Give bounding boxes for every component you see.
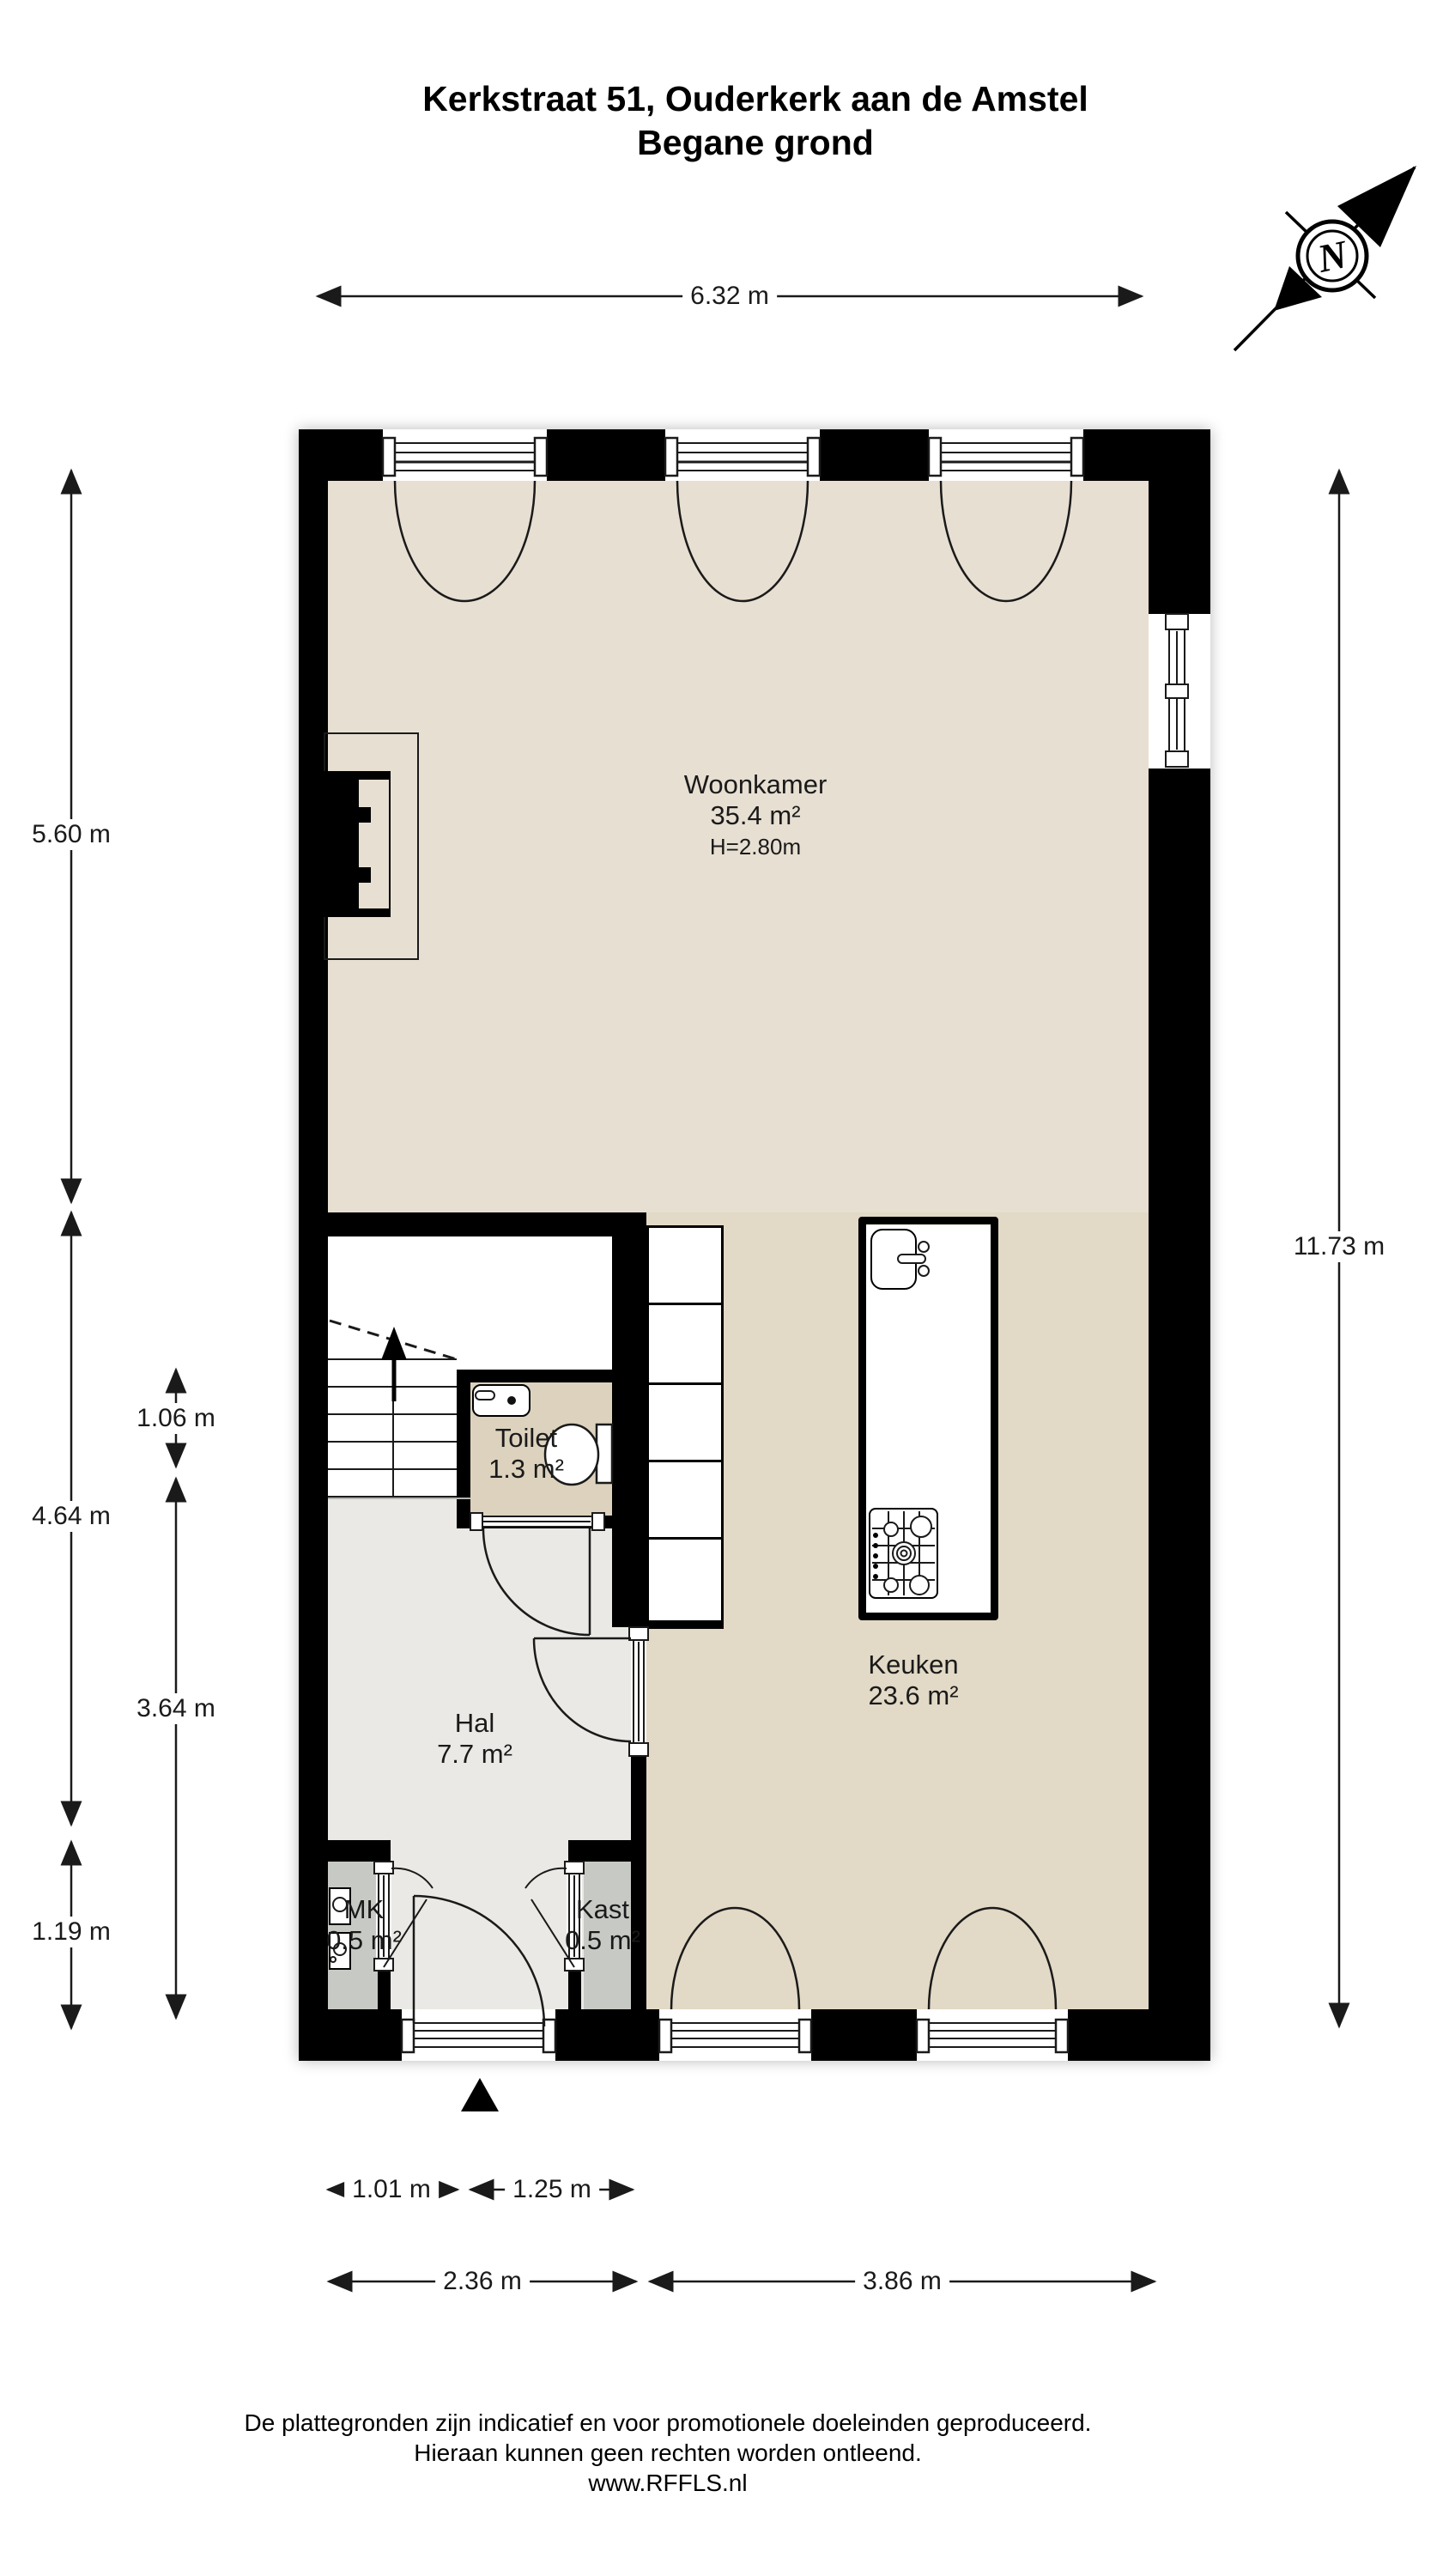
kitchen-door-2-icon [917,1908,1068,2052]
frenchdoor-1-icon [383,438,547,601]
floorplan-page: Kerkstraat 51, Ouderkerk aan de Amstel B… [0,0,1449,2576]
dim-bottom-keuken: 3.86 m [855,2266,949,2297]
dim-bottom-stair: 1.01 m [344,2174,439,2205]
hal-keuken-door-icon [534,1627,648,1756]
entrance-marker-icon [461,2078,499,2111]
room-label-mk: MK 0.5 m² [326,1894,402,1956]
dim-inner-upper: 1.06 m [129,1403,223,1434]
room-area: 23.6 m² [868,1680,958,1711]
footer-line-2: Hieraan kunnen geen rechten worden ontle… [0,2438,1336,2468]
dim-bottom-door: 1.25 m [505,2174,599,2205]
toilet-sink-faucet-icon [476,1391,516,1405]
front-door-icon [402,1896,555,2052]
hob-burners-icon [872,1511,935,1595]
footer-disclaimer: De plattegronden zijn indicatief en voor… [0,2408,1336,2498]
room-area: 0.5 m² [326,1925,402,1956]
dim-left-lower: 1.19 m [24,1917,118,1947]
room-label-toilet: Toilet 1.3 m² [488,1423,564,1485]
room-name: Hal [437,1708,512,1739]
island-faucet-icon [898,1242,929,1276]
dim-left-upper: 5.60 m [24,819,118,850]
toilet-door-icon [470,1513,604,1635]
room-name: Woonkamer [684,769,828,800]
plan-linework: N [0,0,1449,2576]
room-name: Kast [565,1894,640,1925]
dim-top: 6.32 m [682,281,777,312]
room-label-hal: Hal 7.7 m² [437,1708,512,1770]
frenchdoor-2-icon [665,438,820,601]
stairs-up-arrow-icon [381,1327,407,1401]
footer-website: www.RFFLS.nl [0,2468,1336,2498]
dim-bottom-hal: 2.36 m [435,2266,530,2297]
dim-left-middle: 4.64 m [24,1501,118,1532]
dim-inner-lower: 3.64 m [129,1693,223,1724]
room-name: Keuken [868,1649,958,1680]
frenchdoor-3-icon [929,438,1083,601]
room-label-keuken: Keuken 23.6 m² [868,1649,958,1711]
room-area: 0.5 m² [565,1925,640,1956]
room-label-kast: Kast 0.5 m² [565,1894,640,1956]
footer-line-1: De plattegronden zijn indicatief en voor… [0,2408,1336,2438]
compass-icon: N [1234,166,1416,350]
room-height: H=2.80m [684,831,828,862]
window-right-icon [1166,614,1188,767]
kitchen-door-1-icon [659,1908,811,2052]
room-area: 35.4 m² [684,800,828,831]
dim-right: 11.73 m [1286,1231,1392,1262]
room-label-woonkamer: Woonkamer 35.4 m² H=2.80m [684,769,828,862]
room-area: 7.7 m² [437,1739,512,1770]
dimension-lines [71,296,1339,2281]
room-area: 1.3 m² [488,1454,564,1485]
room-name: Toilet [488,1423,564,1454]
room-name: MK [326,1894,402,1925]
